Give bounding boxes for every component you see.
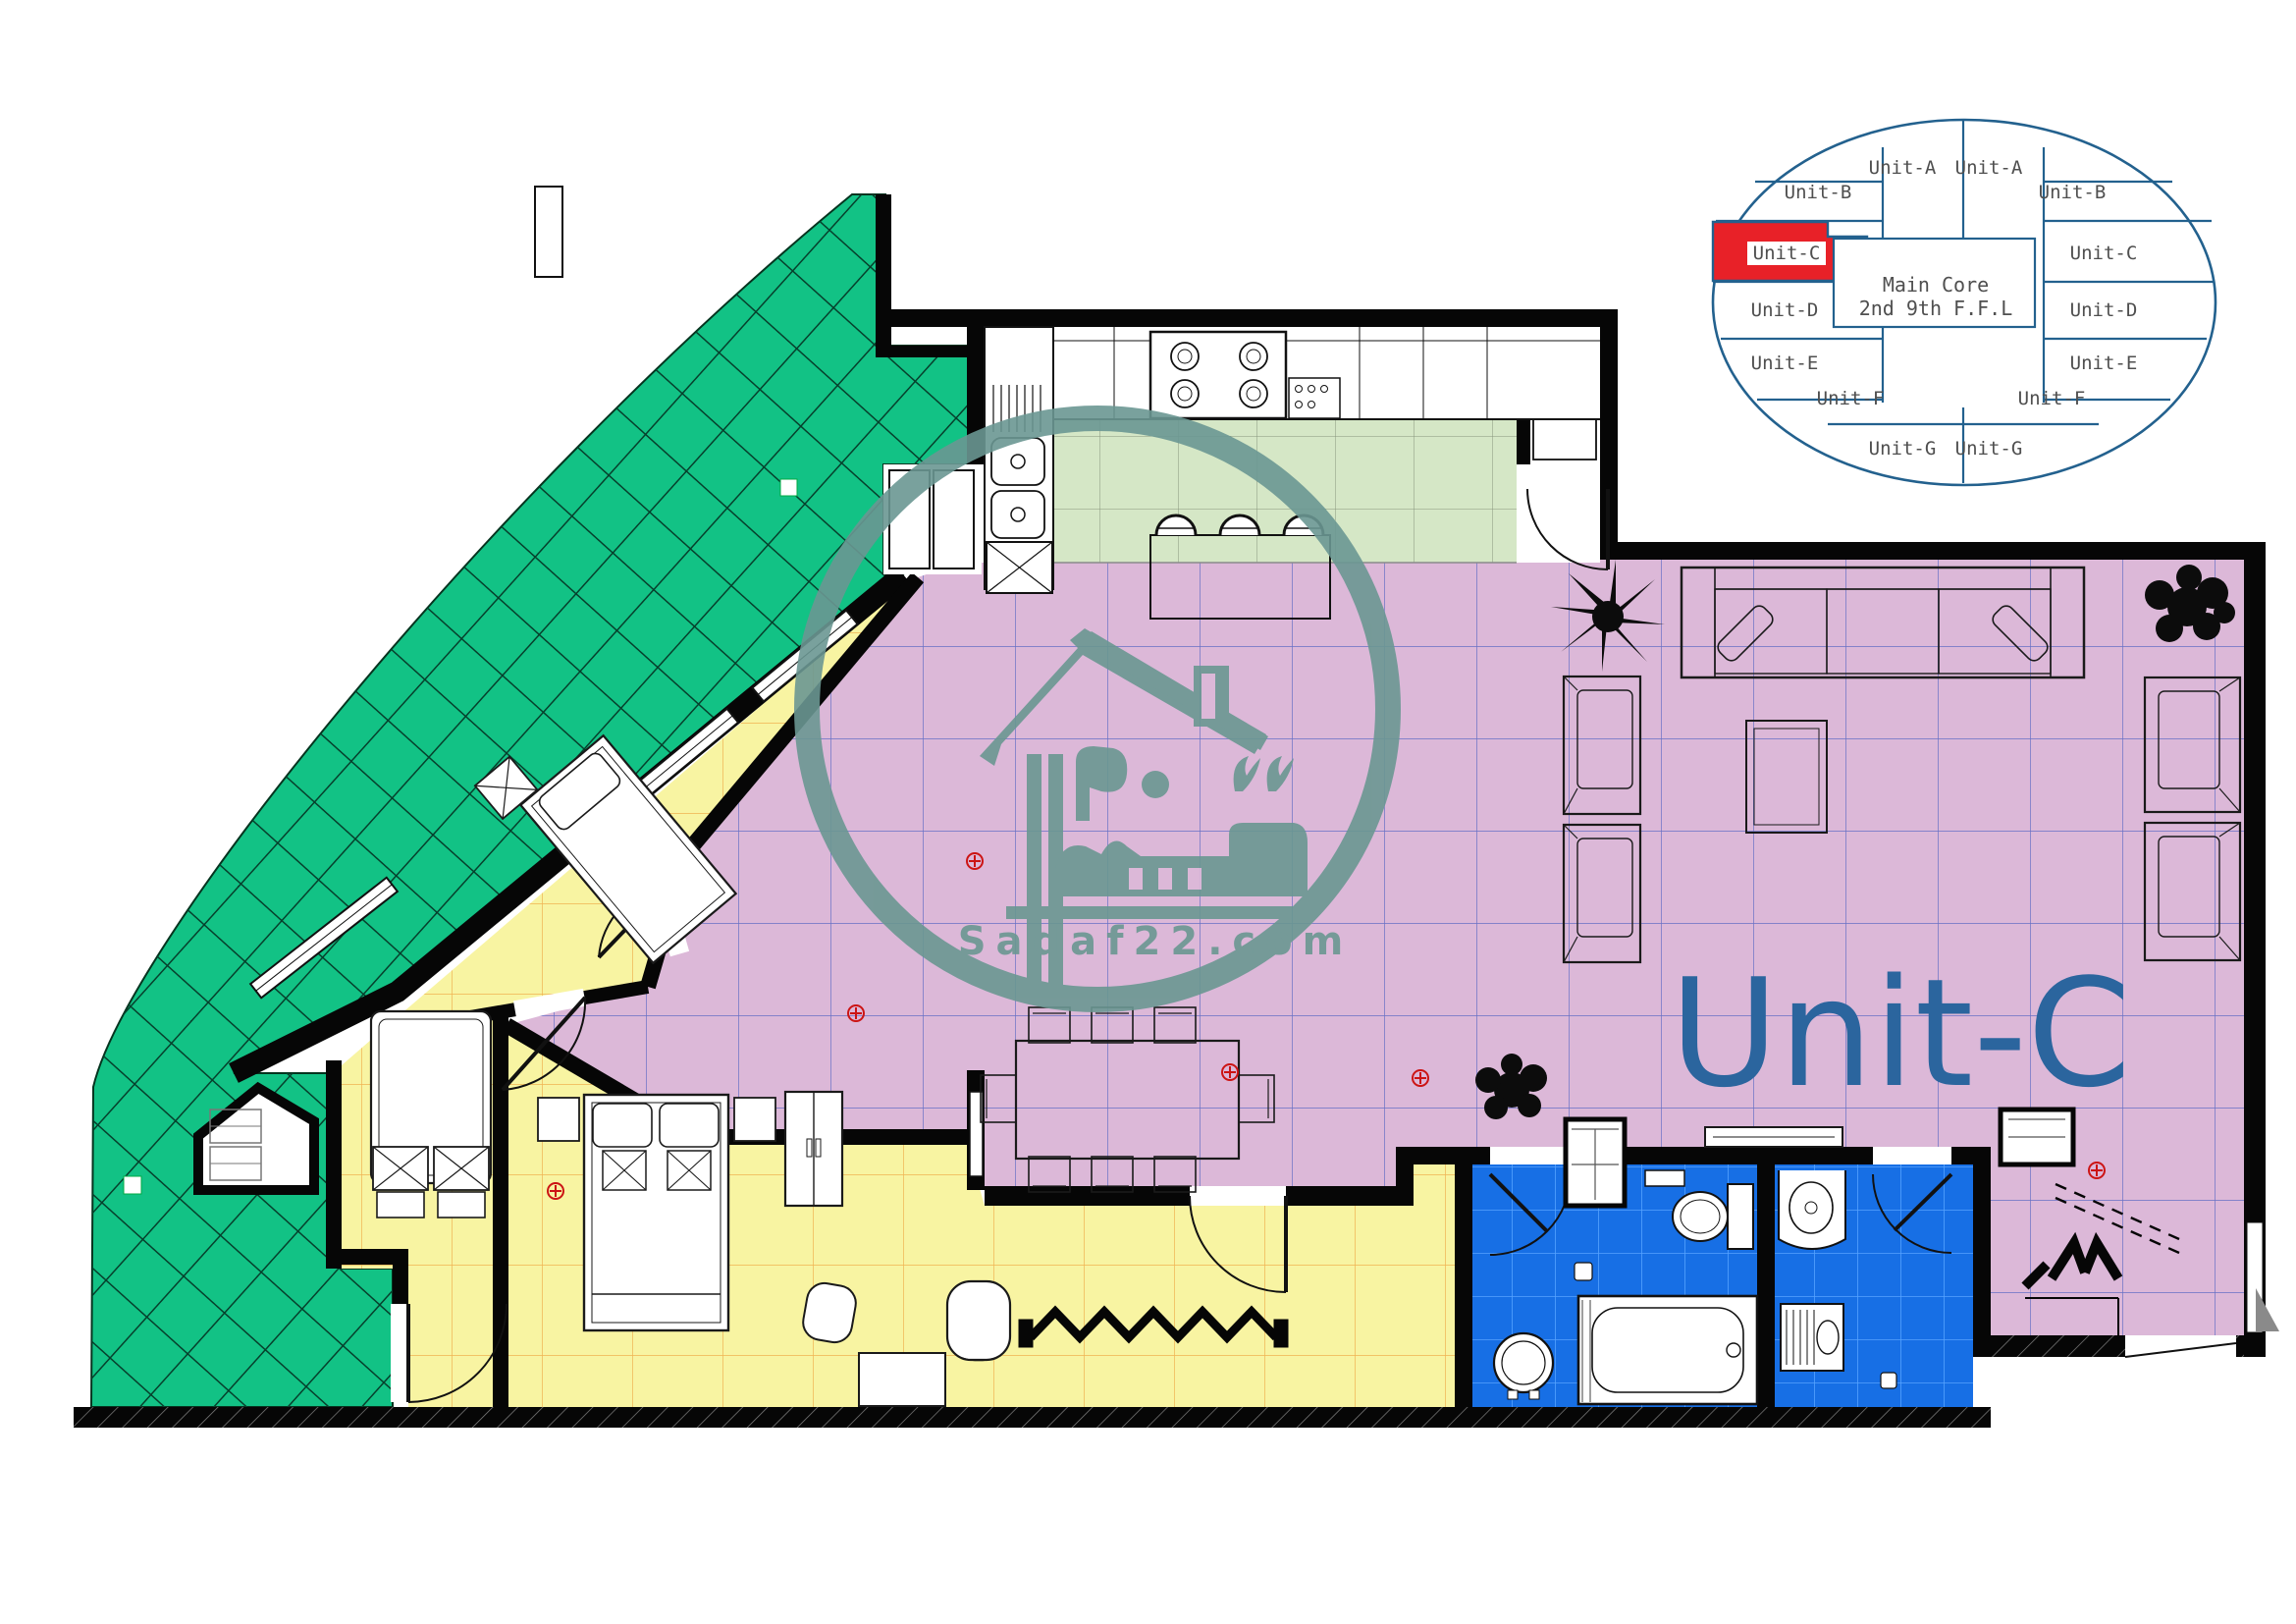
calligraphy-dot [1142,771,1169,798]
outlet-icon [1222,1064,1238,1080]
bidet [1781,1304,1843,1371]
watermark-site: Sadaf22.com [958,919,1354,964]
keyplan-unit: Unit-C [2070,243,2138,264]
nightstand [538,1098,579,1141]
chair [947,1281,1010,1361]
wardrobe [785,1092,842,1206]
bathtub [1578,1296,1757,1404]
floor-drain [1881,1373,1896,1388]
terrace-drain [780,479,797,496]
keyplan-unit: Unit-G [1869,438,1937,460]
side-table [859,1353,945,1406]
keyplan-unit: Unit-B [1785,182,1852,203]
dishwasher [987,542,1052,593]
keyplan-unit: Unit-D [1751,299,1819,321]
keyplan-unit: Unit-F [1817,388,1885,409]
outlet-icon [1413,1070,1428,1086]
shelf [1645,1170,1684,1186]
main-core-label: Main Core [1883,273,1989,297]
floor-plan-page: Unit-C Sadaf22.com [0,0,2296,1624]
outlet-icon [967,853,983,869]
terrace-drain [124,1176,141,1194]
outlet-icon [2089,1163,2105,1178]
key-plan: Unit-A Unit-A Unit-B Unit-B Unit-C Unit-… [1713,120,2216,485]
main-core-floors: 2nd 9th F.F.L [1859,297,2013,320]
keyplan-unit: Unit-A [1869,157,1937,179]
nightstand [734,1098,775,1141]
tv-console [1705,1127,1842,1147]
underline [1006,906,1306,919]
keyplan-unit: Unit-A [1955,157,2023,179]
keyplan-unit-highlighted: Unit-C [1753,243,1821,264]
kitchen [985,419,1517,563]
x-chair [434,1147,489,1218]
outlet-icon [548,1183,563,1199]
x-chair [373,1147,428,1218]
main-entrance-door [2125,1335,2236,1357]
unit-label: Unit-C [1670,947,2131,1120]
keyplan-unit: Unit-B [2039,182,2107,203]
floor-drain [1575,1263,1592,1280]
floor-plan-drawing: Unit-C Sadaf22.com [0,0,2296,1624]
outlet-icon [848,1005,864,1021]
keyplan-unit: Unit-E [2070,352,2138,374]
double-bed [584,1095,728,1330]
sink [1779,1170,1845,1249]
terrace-shaft [535,187,562,277]
keyplan-unit: Unit-F [2018,388,2086,409]
keyplan-unit: Unit-E [1751,352,1819,374]
keyplan-unit: Unit-D [2070,299,2138,321]
keyplan-unit: Unit-G [1955,438,2023,460]
